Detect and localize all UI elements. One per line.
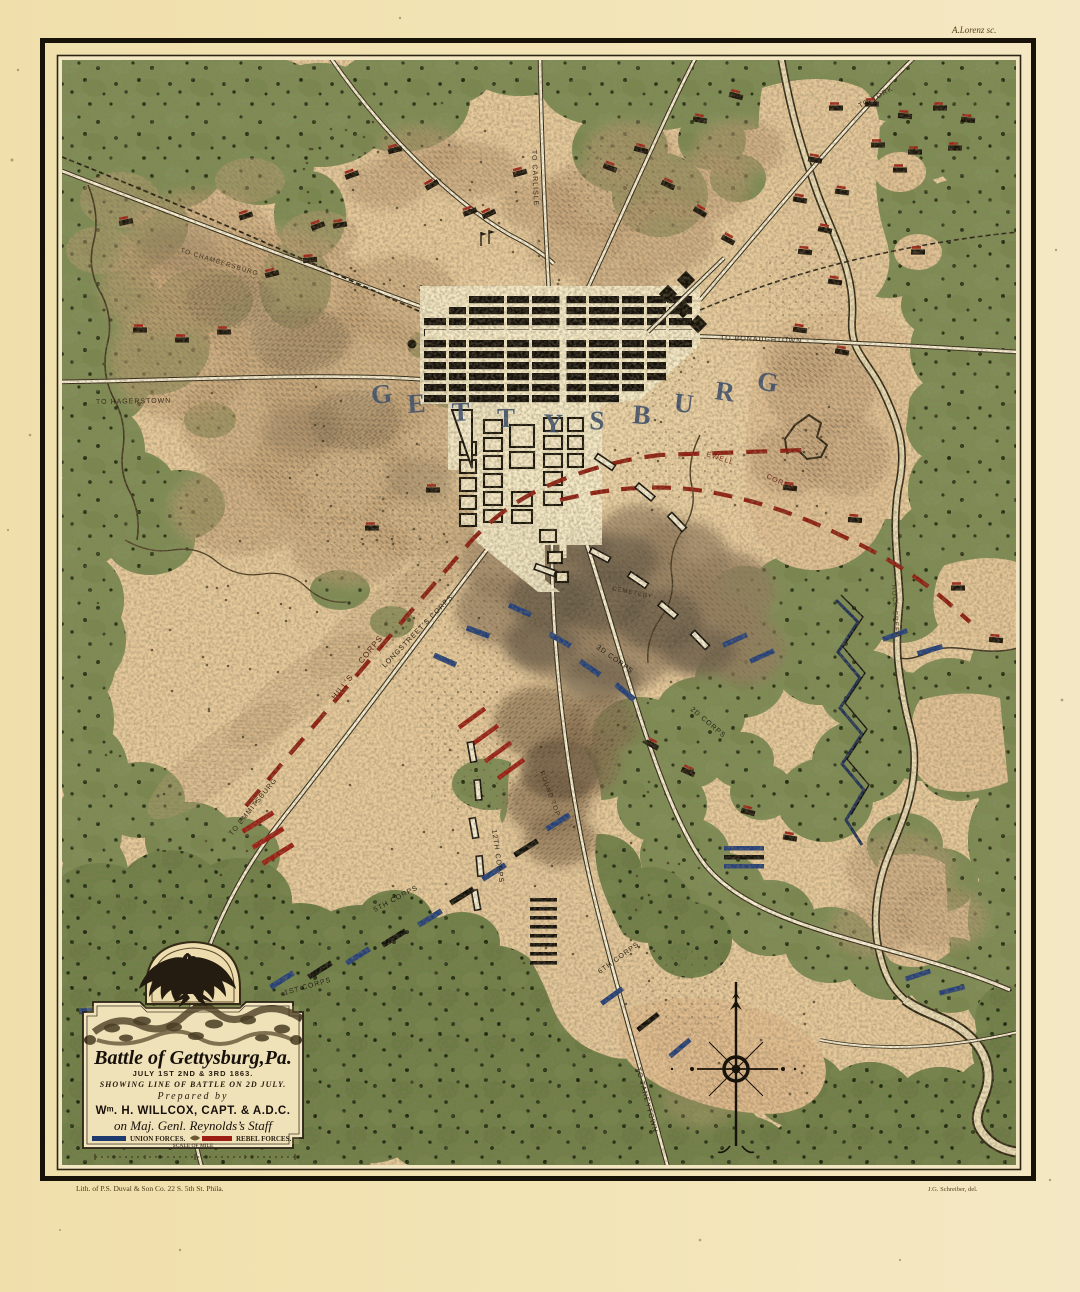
- svg-text:REBEL FORCES.: REBEL FORCES.: [236, 1135, 291, 1143]
- svg-text:on Maj. Genl. Reynolds’s Staff: on Maj. Genl. Reynolds’s Staff: [114, 1118, 274, 1133]
- svg-text:A.Lorenz sc.: A.Lorenz sc.: [951, 25, 996, 35]
- svg-text:UNION FORCES.: UNION FORCES.: [130, 1135, 185, 1143]
- svg-text:Prepared by: Prepared by: [157, 1091, 229, 1102]
- svg-text:Lith. of P.S. Duval & Son Co.: Lith. of P.S. Duval & Son Co. 22 S. 5th …: [76, 1184, 224, 1193]
- svg-text:SHOWING LINE OF BATTLE ON 2D J: SHOWING LINE OF BATTLE ON 2D JULY.: [100, 1080, 287, 1089]
- svg-text:Battle of Gettysburg,Pa.: Battle of Gettysburg,Pa.: [93, 1047, 292, 1069]
- svg-text:Wᵐ. H. WILLCOX, CAPT. & A.D.C.: Wᵐ. H. WILLCOX, CAPT. & A.D.C.: [96, 1105, 291, 1117]
- svg-text:J.G. Schreiber, del.: J.G. Schreiber, del.: [928, 1186, 978, 1193]
- svg-text:SCALE OF MILE: SCALE OF MILE: [173, 1143, 214, 1149]
- svg-text:JULY 1ST 2ND & 3RD 1863.: JULY 1ST 2ND & 3RD 1863.: [133, 1069, 254, 1078]
